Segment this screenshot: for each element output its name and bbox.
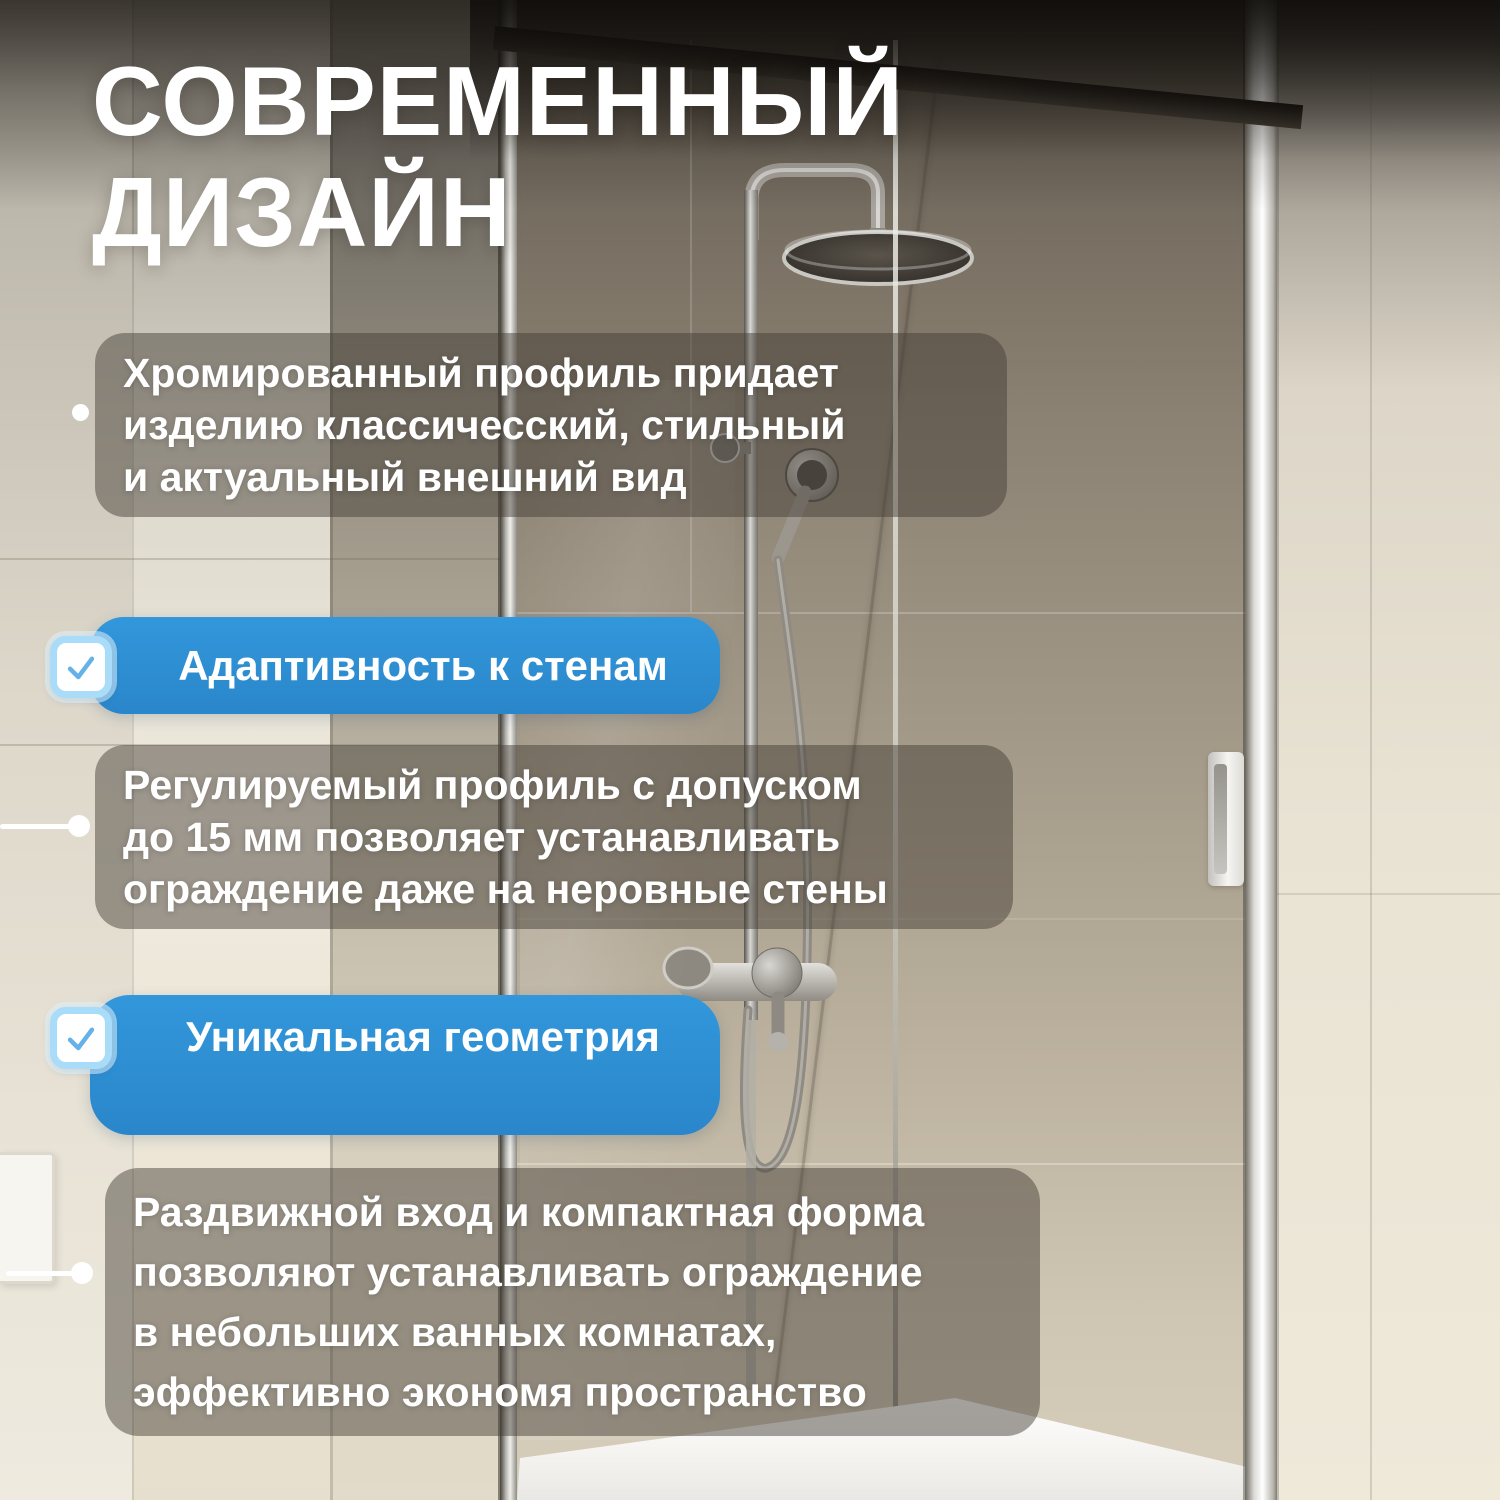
tile-seam: [1370, 0, 1372, 1500]
checkbox-check-icon: [50, 636, 112, 698]
door-handle-slot: [1214, 764, 1227, 874]
feature-paragraph-adjustable-profile: Регулируемый профиль с допуском до 15 мм…: [95, 745, 1013, 929]
leader-line: [0, 824, 72, 829]
door-handle: [1208, 752, 1244, 886]
leader-dot: [68, 815, 90, 837]
leader-dot: [71, 1262, 93, 1284]
feature-paragraph-compact-form: Раздвижной вход и компактная форма позво…: [105, 1168, 1040, 1436]
product-infographic: СОВРЕМЕННЫЙ ДИЗАЙН Хромированный профиль…: [0, 0, 1500, 1500]
feature-badge-geometry: Уникальная геометрия: [90, 995, 720, 1135]
mixer-lever-knob: [768, 1032, 788, 1052]
leader-line: [6, 1271, 76, 1276]
badge-label: Адаптивность к стенам: [178, 642, 668, 690]
chrome-profile-right: [1245, 0, 1277, 1500]
checkbox-check-icon: [50, 1007, 112, 1069]
feature-badge-adaptability: Адаптивность к стенам: [90, 617, 720, 714]
feature-paragraph-design: Хромированный профиль придает изделию кл…: [95, 333, 1007, 517]
tile-seam: [0, 558, 500, 560]
page-title: СОВРЕМЕННЫЙ ДИЗАЙН: [92, 46, 1192, 268]
tile-seam: [1277, 893, 1500, 895]
bullet-dot: [72, 404, 89, 421]
badge-label: Уникальная геометрия: [186, 1013, 660, 1061]
photo-wall-right: [1277, 0, 1500, 1500]
wall-switch-panel: [0, 1152, 55, 1284]
